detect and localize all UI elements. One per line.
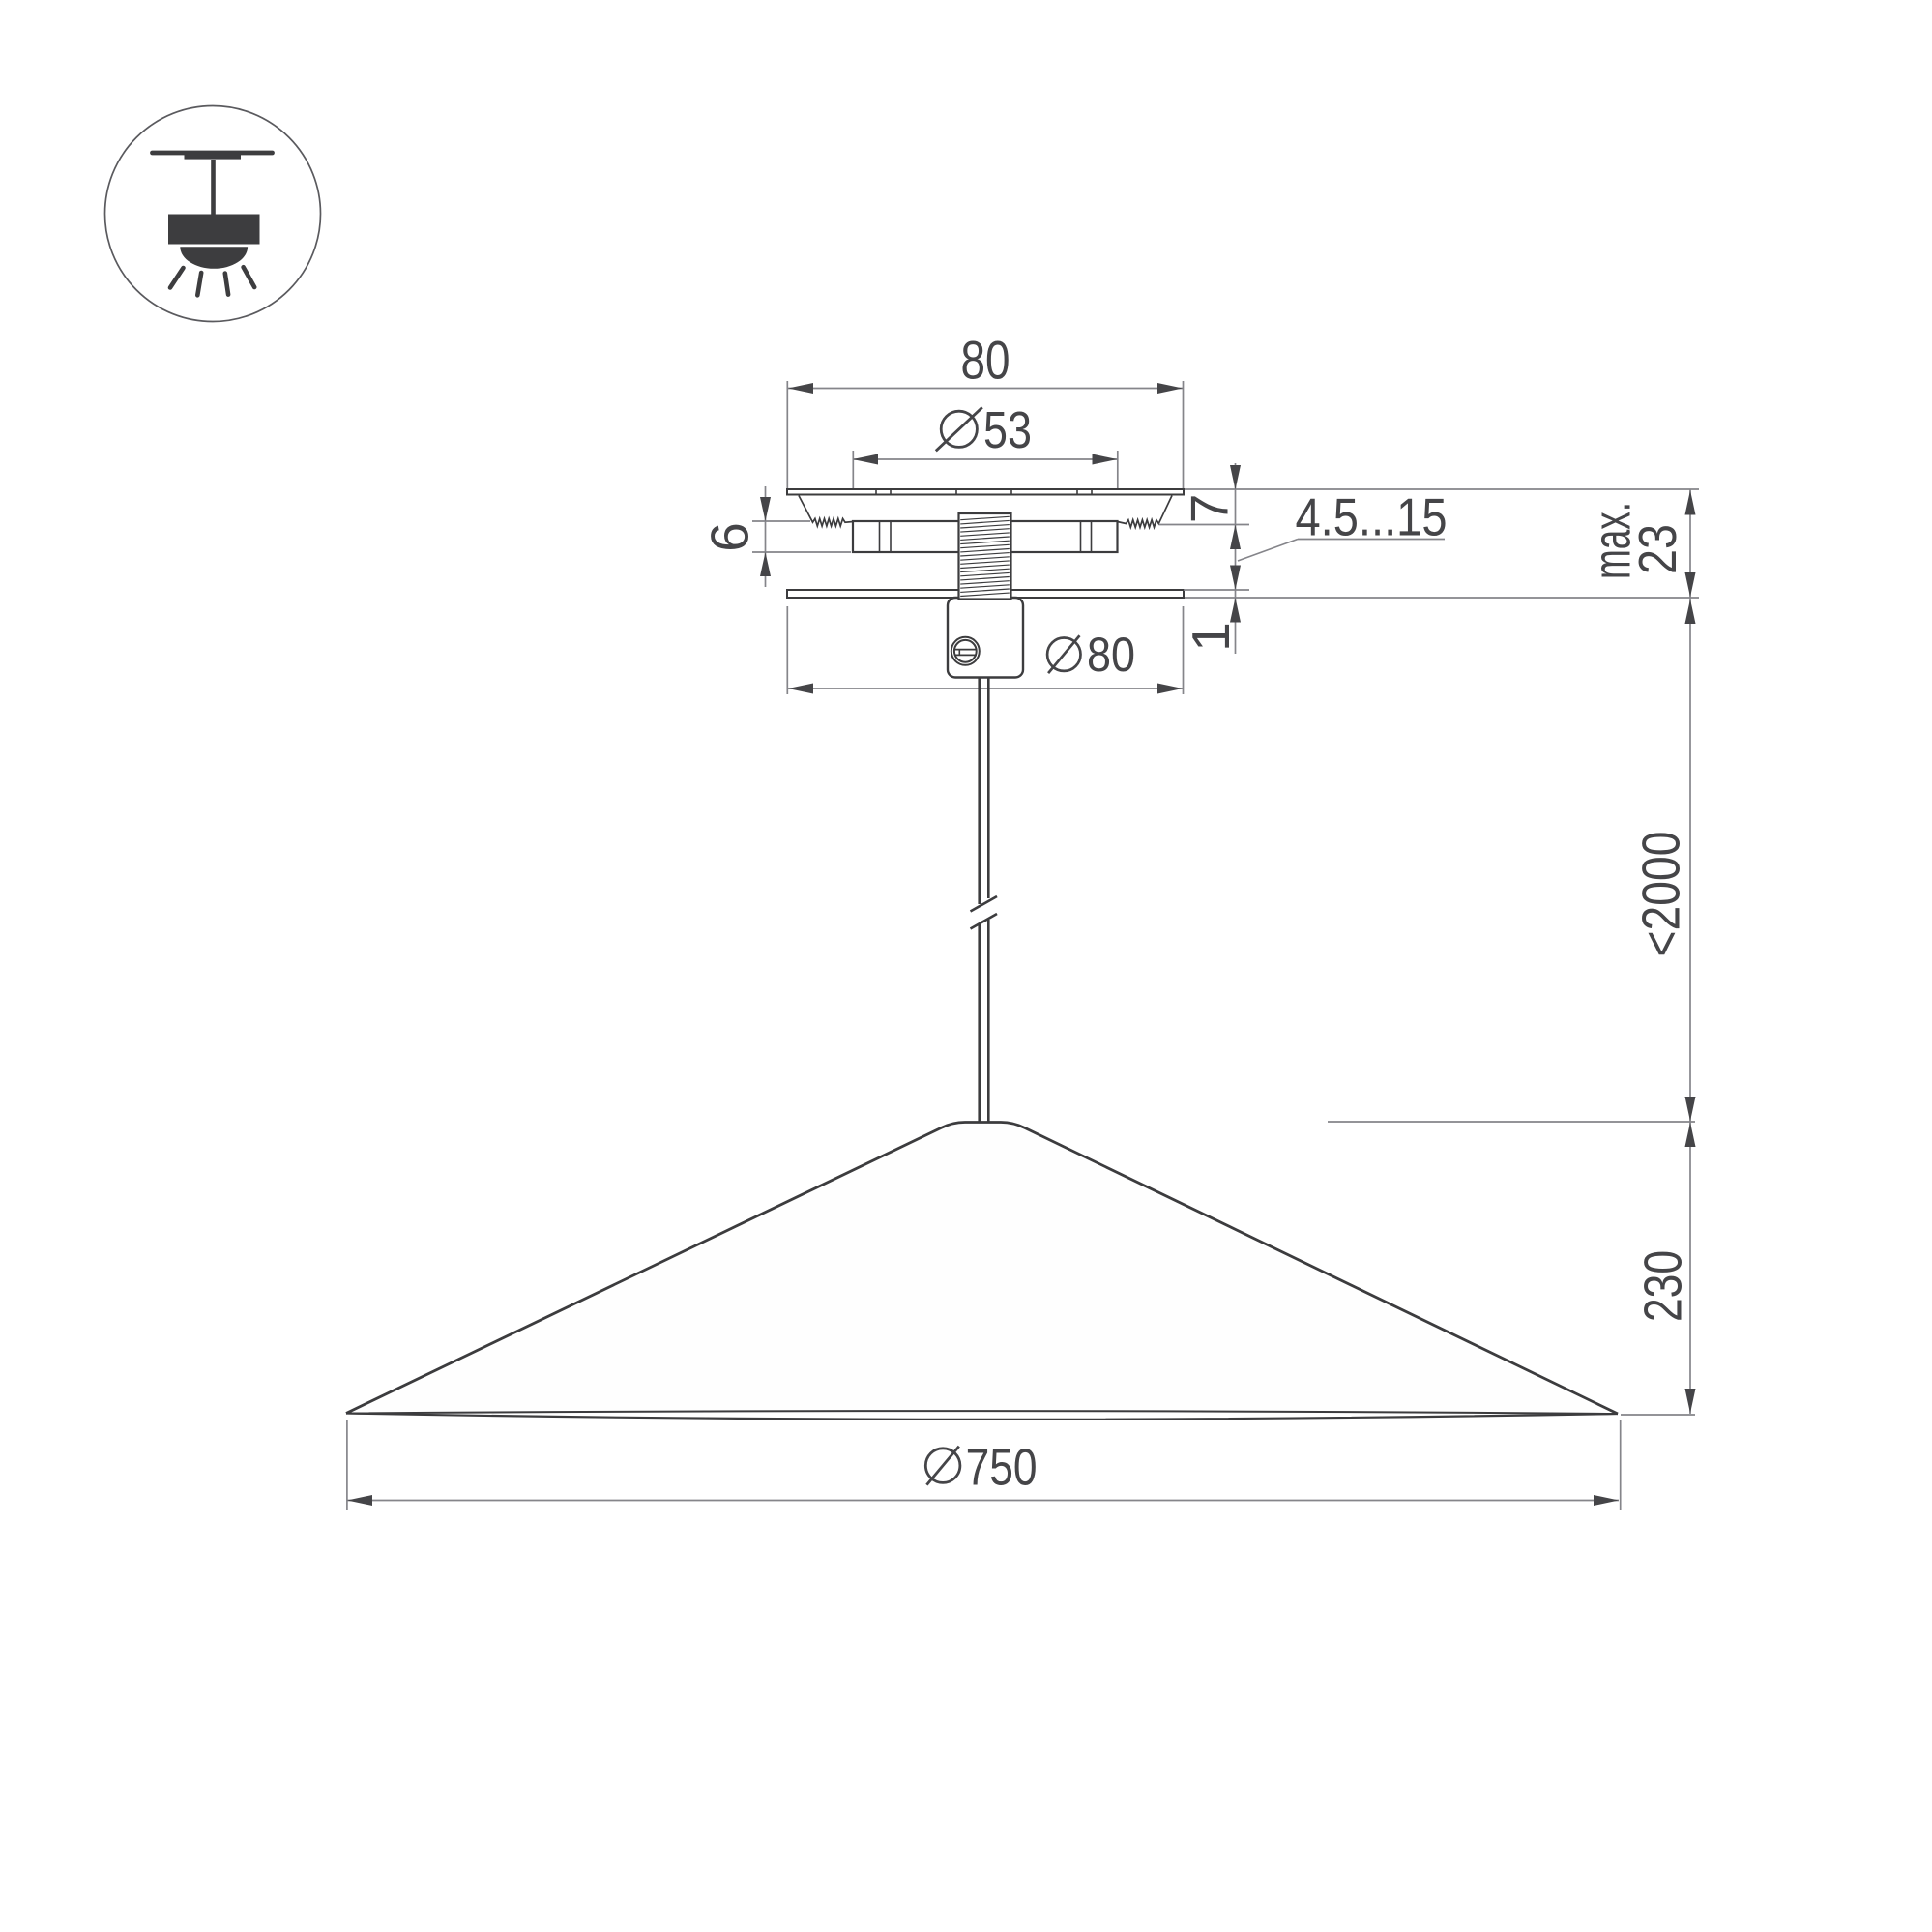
svg-text:4.5...15: 4.5...15 (1296, 487, 1448, 547)
svg-text:7: 7 (1180, 494, 1240, 524)
svg-text:1: 1 (1181, 622, 1241, 652)
svg-text:230: 230 (1633, 1250, 1693, 1322)
svg-text:80: 80 (961, 329, 1010, 390)
svg-text:23: 23 (1627, 524, 1687, 574)
svg-text:6: 6 (700, 522, 760, 552)
svg-text:<2000: <2000 (1631, 832, 1691, 957)
svg-text:53: 53 (983, 401, 1032, 459)
svg-text:80: 80 (1087, 628, 1135, 682)
svg-text:750: 750 (966, 1439, 1038, 1497)
